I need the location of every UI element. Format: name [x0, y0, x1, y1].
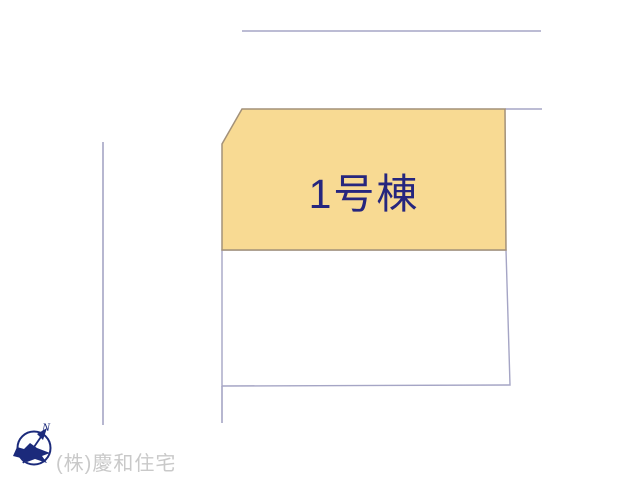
company-watermark: (株)慶和住宅 — [56, 447, 176, 476]
site-plan-page: N 1号棟 (株)慶和住宅 — [0, 0, 640, 480]
compass-logo: N — [13, 420, 51, 465]
compass-north-label: N — [41, 420, 51, 434]
lot-number-label: 1号棟 — [222, 160, 506, 220]
site-plan-canvas: N — [0, 0, 640, 480]
adjacent-lot-shape — [222, 250, 510, 386]
